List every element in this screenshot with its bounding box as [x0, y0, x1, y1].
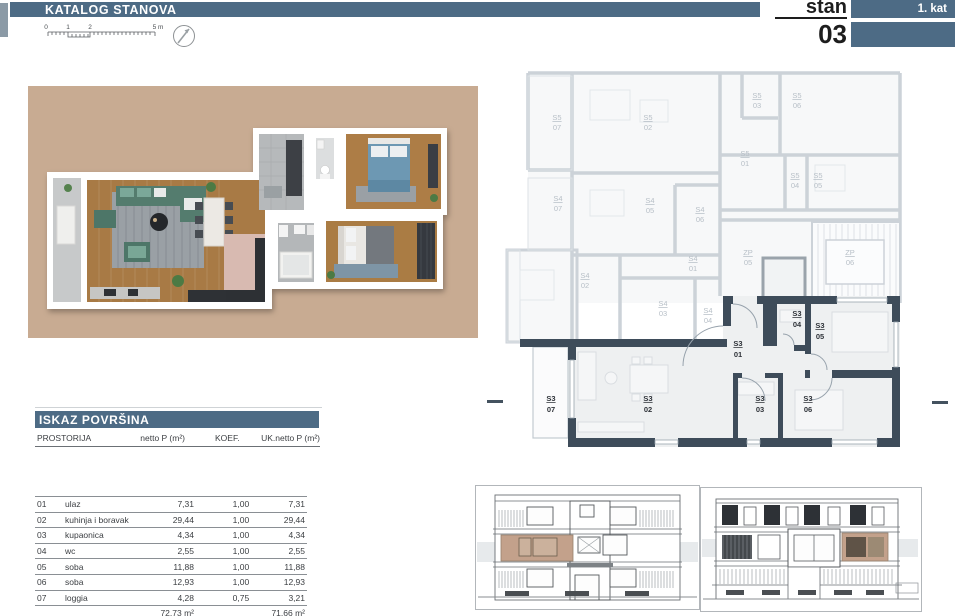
svg-text:06: 06	[793, 101, 801, 110]
plan-3d-panel	[28, 86, 478, 338]
svg-text:03: 03	[756, 405, 764, 414]
table-row: 05 soba 11,88 1,00 11,88	[35, 559, 307, 575]
unit-label: S3	[643, 394, 652, 403]
title-bar: KATALOG STANOVA	[10, 2, 760, 17]
unit-label: S4	[580, 271, 589, 280]
svg-text:06: 06	[846, 258, 854, 267]
north-compass-icon	[174, 26, 195, 47]
svg-text:04: 04	[791, 181, 799, 190]
areas-table: 01 ulaz 7,31 1,00 7,31 02 kuhinja i bora…	[35, 496, 307, 616]
table-row: 01 ulaz 7,31 1,00 7,31	[35, 497, 307, 513]
scale-tick-0: 0	[44, 24, 48, 31]
unit-label: S4	[688, 254, 697, 263]
svg-text:05: 05	[744, 258, 752, 267]
catalog-page: KATALOG STANOVA stan 03 1. kat 0 1 2 5 m	[0, 0, 960, 616]
unit-header: stan 03	[775, 0, 847, 47]
unit-label: ZP	[743, 248, 753, 257]
loggia-3d	[53, 178, 81, 302]
scale-bar-and-compass: 0 1 2 5 m	[28, 22, 228, 52]
table-row: 04 wc 2,55 1,00 2,55	[35, 543, 307, 559]
svg-text:04: 04	[704, 316, 712, 325]
unit-label: S5	[813, 171, 822, 180]
svg-text:03: 03	[659, 309, 667, 318]
table-row: 06 soba 12,93 1,00 12,93	[35, 574, 307, 590]
unit-label: S4	[645, 196, 654, 205]
unit-label: S3	[803, 394, 812, 403]
bathroom-3d	[278, 223, 314, 282]
page-title: KATALOG STANOVA	[45, 3, 177, 17]
plan-2d: S507 S502 S503 S506 S501 S504 S505 S407 …	[480, 60, 960, 460]
unit-label: S5	[643, 113, 652, 122]
svg-text:07: 07	[547, 405, 555, 414]
svg-text:02: 02	[581, 281, 589, 290]
iskaz-title: ISKAZ POVRŠINA	[39, 413, 149, 427]
table-total-row: 72,73 m² 71,66 m²	[35, 606, 307, 616]
total-uk: 71,66 m²	[251, 606, 307, 616]
svg-text:06: 06	[696, 215, 704, 224]
unit-label: S4	[695, 205, 704, 214]
svg-text:07: 07	[554, 204, 562, 213]
total-netto: 72,73 m²	[153, 606, 196, 616]
svg-text:05: 05	[646, 206, 654, 215]
unit-label: S5	[752, 91, 761, 100]
unit-label: S5	[552, 113, 561, 122]
svg-text:02: 02	[644, 123, 652, 132]
unit-label: ZP	[845, 248, 855, 257]
plan-3d	[28, 86, 478, 338]
header-underline	[35, 446, 320, 447]
svg-text:01: 01	[741, 159, 749, 168]
unit-label: S3	[815, 321, 824, 330]
unit-label: S4	[658, 299, 667, 308]
unit-label: S3	[755, 394, 764, 403]
unit-label: S4	[703, 306, 712, 315]
svg-text:04: 04	[793, 320, 802, 329]
svg-text:02: 02	[644, 405, 652, 414]
floor-badge-spacer	[851, 22, 955, 47]
living-room-3d	[87, 180, 265, 302]
unit-label: S5	[740, 149, 749, 158]
scale-tick-2: 2	[88, 24, 92, 31]
unit-label: stan	[775, 0, 847, 19]
unit-label: S3	[733, 339, 742, 348]
table-row: 02 kuhinja i boravak 29,44 1,00 29,44	[35, 512, 307, 528]
areas-table-header: PROSTORIJA netto P (m²) KOEF. UK.netto P…	[35, 433, 307, 445]
iskaz-title-bar: ISKAZ POVRŠINA	[35, 411, 319, 428]
svg-text:05: 05	[814, 181, 822, 190]
elevation-drawing-1	[475, 485, 700, 610]
left-edge-accent	[0, 3, 8, 37]
scale-tick-1: 1	[66, 24, 70, 31]
svg-text:05: 05	[816, 332, 824, 341]
svg-text:07: 07	[553, 123, 561, 132]
unit-number: 03	[775, 21, 847, 47]
bedroom1-3d	[346, 134, 441, 209]
section-marker-left	[487, 400, 503, 403]
table-row: 03 kupaonica 4,34 1,00 4,34	[35, 528, 307, 544]
unit-label: S5	[790, 171, 799, 180]
col-uk: UK.netto P (m²)	[235, 433, 320, 443]
section-marker-right	[932, 401, 948, 404]
col-room: PROSTORIJA	[37, 433, 91, 443]
table-row: 07 loggia 4,28 0,75 3,21	[35, 590, 307, 606]
floor-badge: 1. kat	[851, 0, 955, 18]
svg-text:03: 03	[753, 101, 761, 110]
svg-text:01: 01	[689, 264, 697, 273]
unit-label: S3	[546, 394, 555, 403]
svg-text:06: 06	[804, 405, 812, 414]
entry-hall-3d	[259, 134, 304, 210]
unit-label: S4	[553, 194, 562, 203]
unit-label: S5	[792, 91, 801, 100]
bedroom2-3d	[326, 221, 437, 282]
svg-text:01: 01	[734, 350, 742, 359]
wc-3d	[316, 138, 334, 179]
col-netto: netto P (m²)	[110, 433, 185, 443]
scale-tick-end: 5 m	[153, 24, 164, 31]
divider-line	[35, 407, 322, 408]
unit-label: S3	[792, 309, 801, 318]
elevation-drawing-2	[700, 487, 922, 612]
